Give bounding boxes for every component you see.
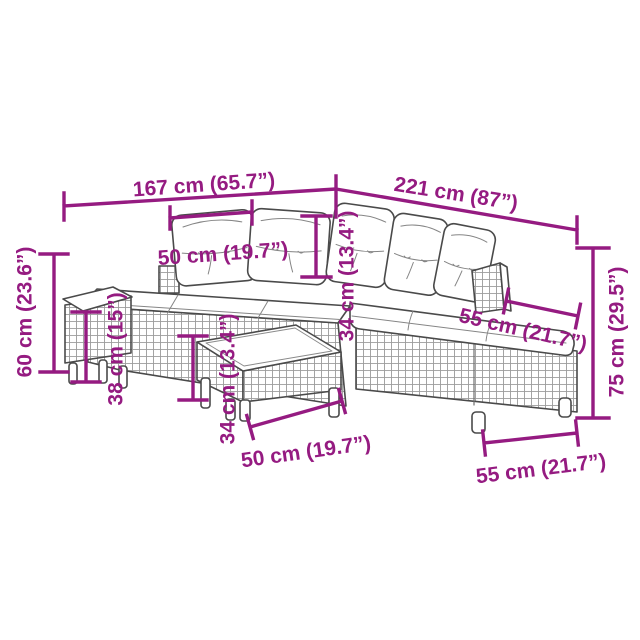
dimension-line <box>483 421 579 455</box>
chaise-leg-right <box>559 398 571 417</box>
dim-table-width: 50 cm (19.7”) <box>240 390 373 473</box>
dimension-line <box>40 254 68 372</box>
dimension-label: 75 cm (29.5”) <box>606 267 629 398</box>
dimension-label: 34 cm (13.4”) <box>336 211 359 342</box>
dimension-label: 38 cm (15”) <box>105 292 128 405</box>
dim-module-width: 55 cm (21.7”) <box>475 421 608 488</box>
product-dimension-diagram: 167 cm (65.7”) 221 cm (87”) 50 cm (19.7”… <box>0 0 640 640</box>
dimension-label: 55 cm (21.7”) <box>475 450 608 489</box>
dimension-label: 60 cm (23.6”) <box>14 247 37 378</box>
dimension-label: 34 cm (13.4”) <box>217 314 240 445</box>
dimension-label: 167 cm (65.7”) <box>132 169 276 202</box>
dimension-label: 50 cm (19.7”) <box>240 432 373 473</box>
armrest-panel-right <box>472 263 504 313</box>
table-leg-left <box>201 378 210 408</box>
dim-height-left: 60 cm (23.6”) <box>14 247 69 378</box>
dimension-diagram-canvas: 167 cm (65.7”) 221 cm (87”) 50 cm (19.7”… <box>0 0 640 640</box>
